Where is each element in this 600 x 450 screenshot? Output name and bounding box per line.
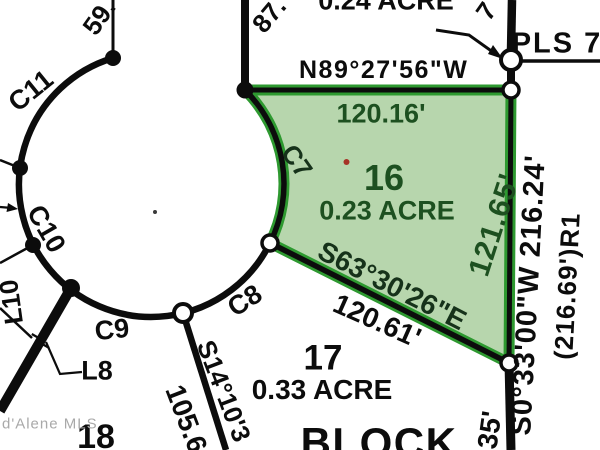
node-filled	[105, 50, 121, 66]
east-record-distance-label: (216.69')R1	[550, 212, 584, 360]
curve-l8-label: L8	[81, 358, 113, 385]
block-label: BLOCK	[301, 422, 458, 450]
node-filled	[62, 279, 80, 297]
lot17-area-label: 0.33 ACRE	[252, 376, 393, 404]
pls-leader-line	[436, 30, 497, 55]
curve-c9-label: C9	[93, 315, 130, 345]
cul-de-sac-arc	[19, 58, 270, 317]
l8-leader	[46, 342, 82, 374]
speck	[153, 210, 157, 214]
node-filled	[12, 160, 28, 176]
east-offset-label: 35'	[474, 409, 507, 450]
pls-monument-label: PLS 7	[512, 30, 600, 59]
red-mark	[344, 159, 350, 165]
lot16-area-label: 0.23 ACRE	[319, 198, 455, 225]
node-open	[174, 304, 192, 322]
lot15-area-label: 0.24 ACRE	[318, 0, 454, 15]
curve-l10-label: L10	[0, 278, 27, 326]
lot17-number-label: 17	[304, 341, 343, 376]
north-distance-label: 120.16'	[336, 101, 425, 128]
watermark: d'Alene MLS	[2, 417, 98, 432]
north-bearing-label: N89°27'56"W	[299, 57, 479, 80]
node-filled	[237, 82, 254, 99]
dim-arrowhead	[7, 203, 19, 212]
lot16-number-label: 16	[364, 160, 404, 196]
node-open	[503, 82, 519, 98]
node-open	[262, 235, 278, 251]
plat-map: 59. C11 87. 0.24 ACRE 7 PLS 7 N89°27'56"…	[0, 0, 600, 450]
